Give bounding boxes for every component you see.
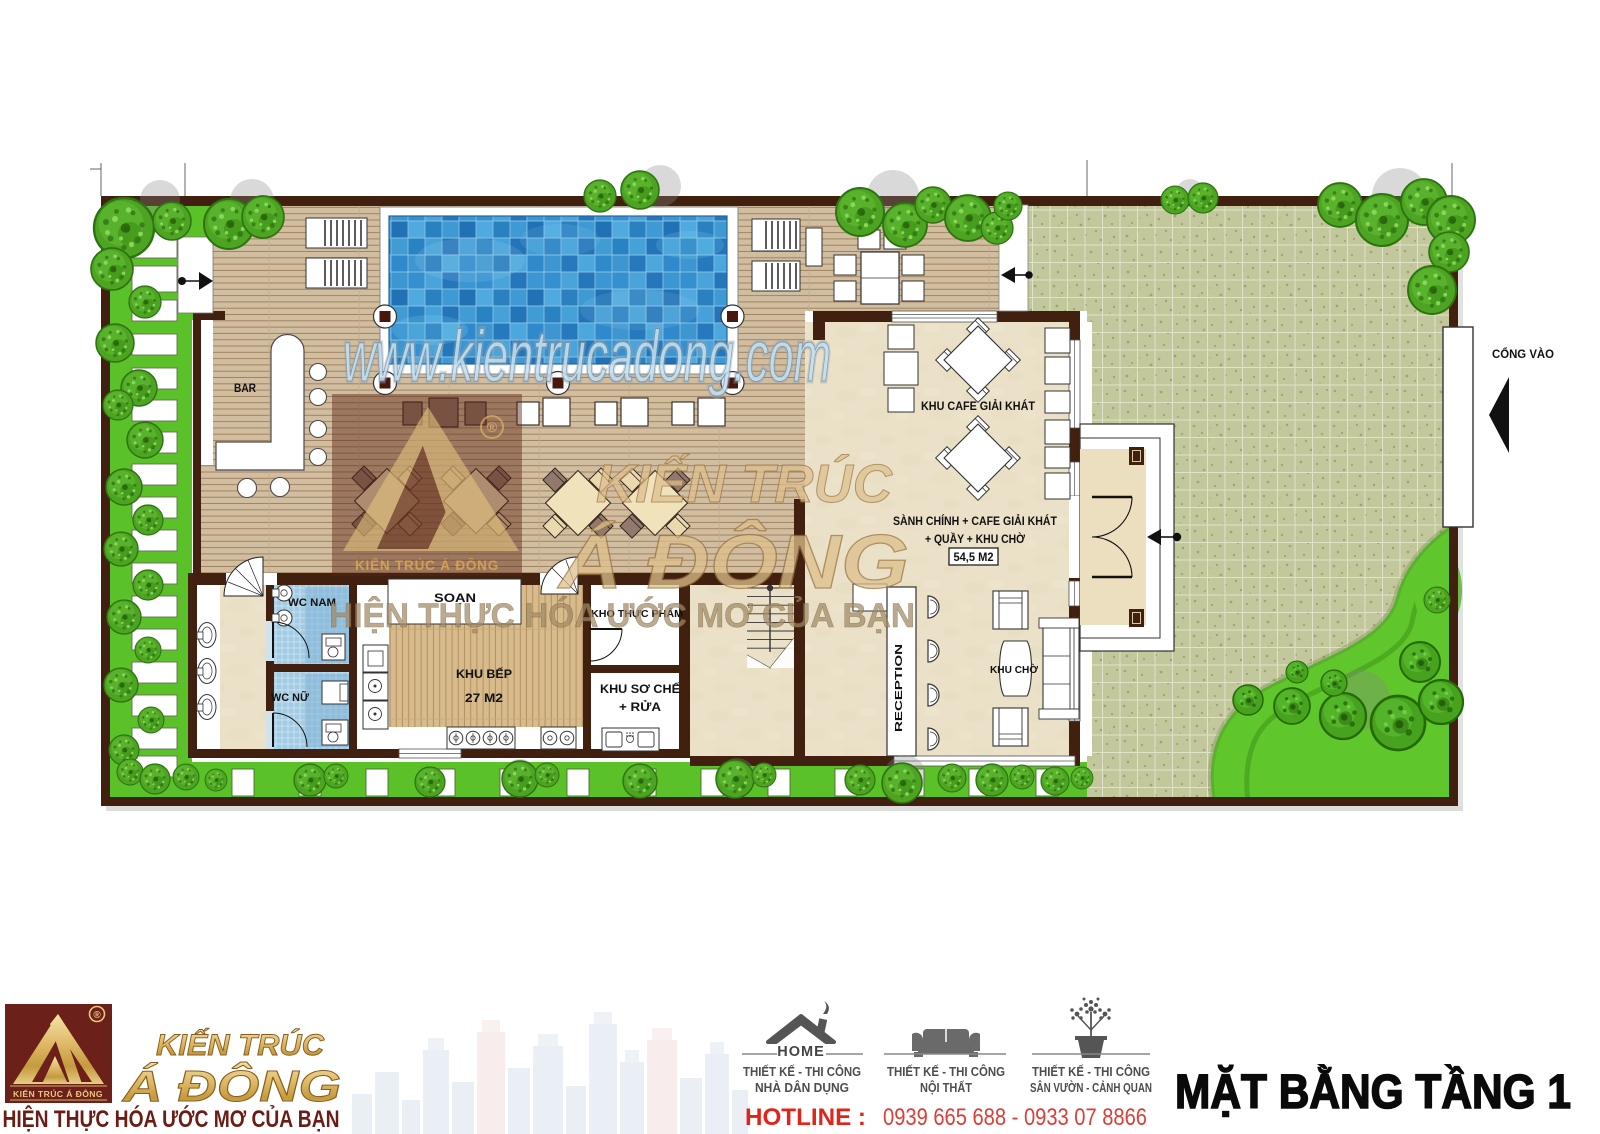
svg-text:BAR: BAR: [234, 381, 256, 395]
svg-text:27 M2: 27 M2: [465, 693, 503, 705]
svg-text:NHÀ DÂN DỤNG: NHÀ DÂN DỤNG: [755, 1080, 849, 1095]
svg-text:THIẾT KẾ - THI CÔNG: THIẾT KẾ - THI CÔNG: [887, 1064, 1005, 1079]
svg-text:HOME: HOME: [777, 1044, 825, 1060]
svg-text:WC NỮ: WC NỮ: [271, 691, 310, 704]
svg-text:SÀNH CHÍNH + CAFE GIẢI KHÁT: SÀNH CHÍNH + CAFE GIẢI KHÁT: [893, 515, 1057, 528]
svg-text:NỘI THẤT: NỘI THẤT: [920, 1080, 972, 1095]
svg-text:THIẾT KẾ - THI CÔNG: THIẾT KẾ - THI CÔNG: [1032, 1064, 1150, 1079]
svg-text:KHU SƠ CHẾ: KHU SƠ CHẾ: [600, 683, 680, 696]
svg-text:+ QUẦY + KHU CHỜ: + QUẦY + KHU CHỜ: [925, 533, 1025, 546]
svg-text:KHU CHỜ: KHU CHỜ: [990, 663, 1038, 676]
svg-text:RECEPTION: RECEPTION: [893, 644, 905, 732]
svg-text:+ RỬA: + RỬA: [619, 701, 661, 714]
svg-text:HOTLINE :: HOTLINE :: [745, 1104, 866, 1131]
svg-text:HIỆN THỰC HÓA ƯỚC MƠ CỦA BẠN: HIỆN THỰC HÓA ƯỚC MƠ CỦA BẠN: [3, 1104, 340, 1133]
svg-text:SÂN VƯỜN - CẢNH QUAN: SÂN VƯỜN - CẢNH QUAN: [1030, 1080, 1152, 1095]
svg-text:KIẾN TRÚC: KIẾN TRÚC: [596, 453, 893, 514]
svg-text:Á ĐÔNG: Á ĐÔNG: [557, 520, 909, 605]
svg-text:KHU BẾP: KHU BẾP: [456, 668, 512, 681]
svg-text:CỔNG VÀO: CỔNG VÀO: [1492, 346, 1554, 361]
svg-text:HIỆN THỰC HÓA ƯỚC MƠ CỦA BẠN: HIỆN THỰC HÓA ƯỚC MƠ CỦA BẠN: [329, 597, 915, 635]
svg-text:KIẾN TRÚC Á ĐÔNG: KIẾN TRÚC Á ĐÔNG: [355, 558, 499, 573]
svg-text:MẶT BẰNG TẦNG 1: MẶT BẰNG TẦNG 1: [1175, 1065, 1571, 1119]
svg-text:KHU CAFE GIẢI KHÁT: KHU CAFE GIẢI KHÁT: [921, 400, 1035, 413]
svg-text:®: ®: [487, 419, 498, 435]
svg-text:®: ®: [93, 1010, 101, 1021]
svg-text:KIẾN TRÚC: KIẾN TRÚC: [156, 1028, 325, 1062]
svg-text:0939 665 688 - 0933 07 8866: 0939 665 688 - 0933 07 8866: [883, 1104, 1147, 1131]
svg-text:Á ĐÔNG: Á ĐÔNG: [122, 1060, 341, 1111]
svg-text:KIẾN TRÚC Á ĐÔNG: KIẾN TRÚC Á ĐÔNG: [13, 1088, 103, 1099]
svg-text:54,5 M2: 54,5 M2: [954, 552, 994, 564]
svg-text:THIẾT KẾ - THI CÔNG: THIẾT KẾ - THI CÔNG: [743, 1064, 861, 1079]
svg-text:www.kientrucadong.com: www.kientrucadong.com: [343, 317, 831, 397]
